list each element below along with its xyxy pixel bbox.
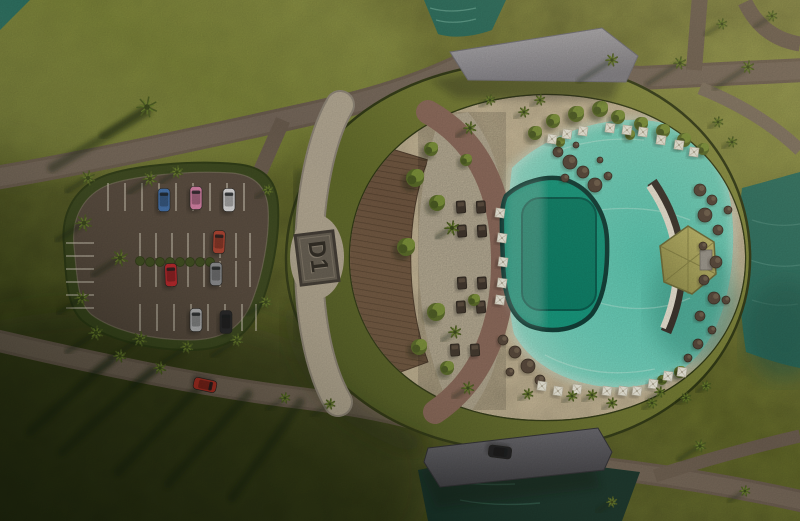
- aerial-resort-render: D1 D1: [0, 0, 800, 521]
- render-canvas: D1 D1: [0, 0, 800, 521]
- film-grain: [0, 0, 800, 521]
